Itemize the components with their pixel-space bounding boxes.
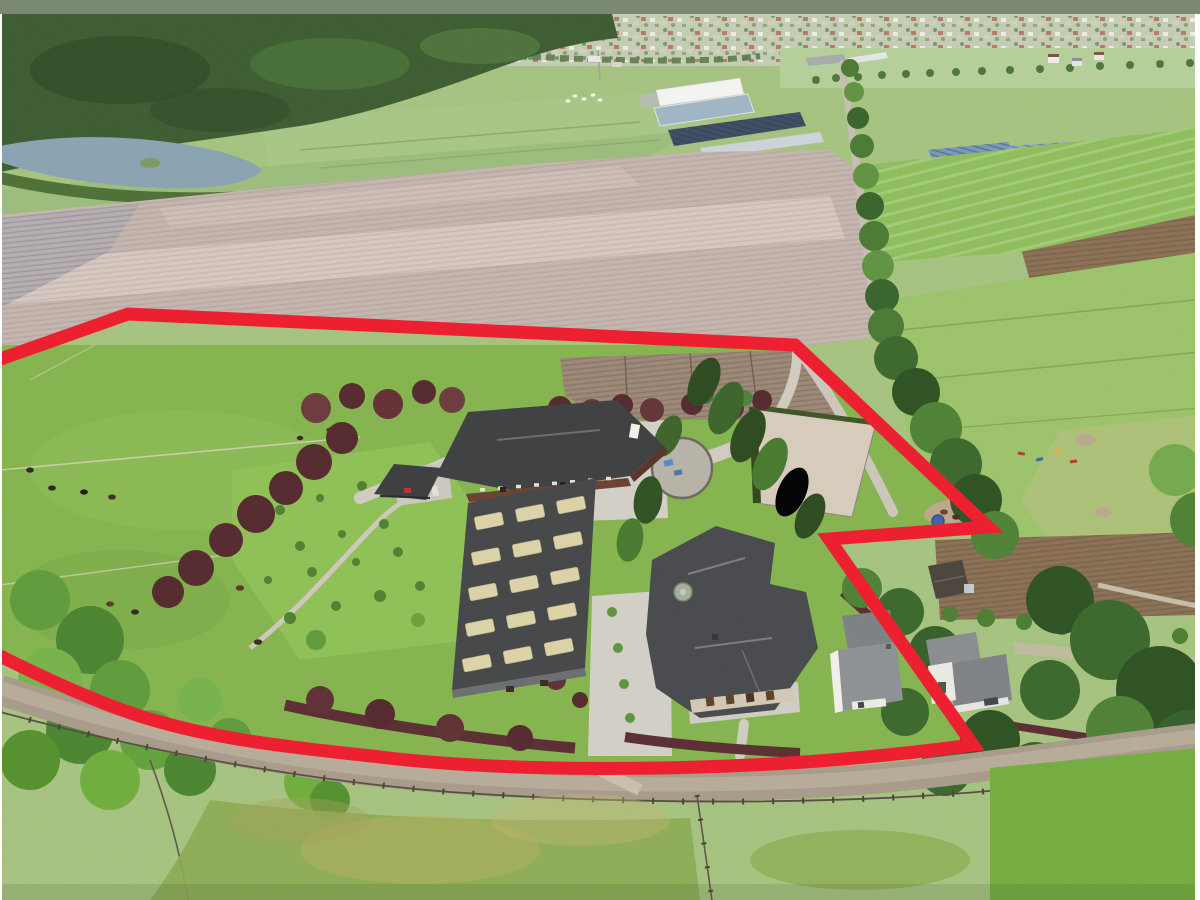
right-margin — [1195, 14, 1200, 900]
photo-grain — [0, 0, 1200, 900]
bottom-vignette — [0, 884, 1200, 900]
left-margin — [0, 14, 2, 900]
aerial-photo — [0, 0, 1200, 900]
aerial-photo-canvas — [0, 0, 1200, 900]
top-haze-band — [0, 0, 1200, 14]
